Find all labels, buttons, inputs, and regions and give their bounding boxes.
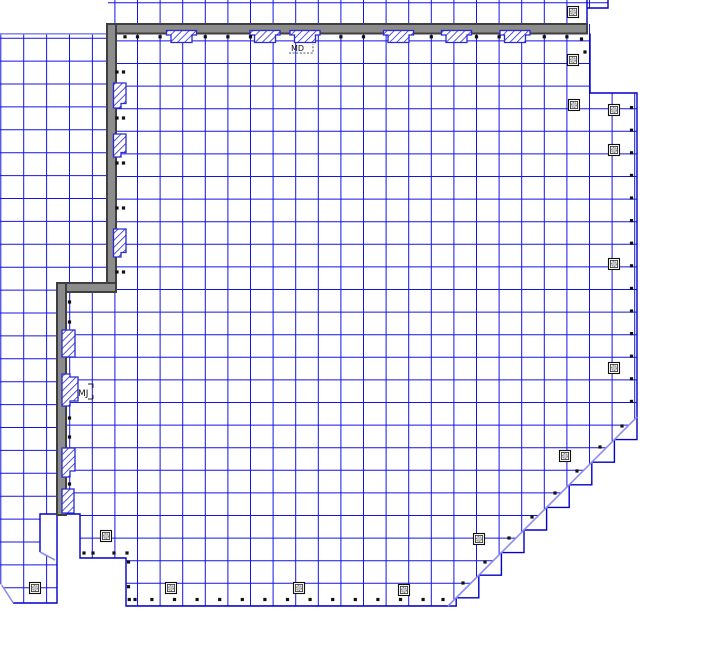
- point-mark: [620, 424, 623, 427]
- top-pier: [167, 31, 197, 43]
- column-symbol: [294, 583, 305, 594]
- point-mark: [630, 287, 633, 290]
- column-symbol: [399, 585, 410, 596]
- point-mark: [122, 161, 125, 164]
- point-mark: [630, 377, 633, 380]
- point-mark: [115, 206, 118, 209]
- point-mark: [630, 332, 633, 335]
- lower-wall-pier: [62, 330, 75, 357]
- column-symbol: [609, 259, 620, 270]
- point-mark: [218, 598, 221, 601]
- point-mark: [136, 35, 139, 38]
- point-mark: [362, 35, 365, 38]
- left-wall-pier: [114, 229, 127, 257]
- column-symbol: [568, 55, 579, 66]
- point-mark: [354, 598, 357, 601]
- column-symbol: [609, 105, 620, 116]
- point-mark: [565, 35, 568, 38]
- point-mark: [115, 161, 118, 164]
- point-mark: [173, 598, 176, 601]
- point-mark: [226, 35, 229, 38]
- cad-viewport[interactable]: MD MJ: [0, 0, 704, 648]
- point-mark: [115, 70, 118, 73]
- top-pier: [384, 31, 414, 43]
- floor-plan-drawing: MD MJ: [0, 0, 704, 648]
- column-symbol: [101, 531, 112, 542]
- point-mark: [630, 355, 633, 358]
- point-mark: [150, 598, 153, 601]
- point-mark: [68, 482, 71, 485]
- point-mark: [598, 445, 601, 448]
- point-mark: [68, 320, 71, 323]
- point-mark: [461, 581, 464, 584]
- point-mark: [630, 264, 633, 267]
- point-mark: [630, 242, 633, 245]
- top-pier: [442, 31, 472, 43]
- point-mark: [125, 551, 128, 554]
- point-mark: [122, 270, 125, 273]
- point-mark: [630, 309, 633, 312]
- point-mark: [128, 598, 131, 601]
- point-mark: [115, 116, 118, 119]
- paper-background: [0, 0, 704, 648]
- point-mark: [241, 598, 244, 601]
- column-symbol: [609, 363, 620, 374]
- point-mark: [507, 536, 510, 539]
- point-mark: [122, 70, 125, 73]
- column-symbol: [166, 583, 177, 594]
- point-mark: [68, 300, 71, 303]
- point-mark: [122, 206, 125, 209]
- point-mark: [498, 35, 501, 38]
- point-mark: [475, 35, 478, 38]
- point-mark: [115, 270, 118, 273]
- point-mark: [430, 35, 433, 38]
- lower-wall-pier: [62, 489, 74, 513]
- point-mark: [630, 196, 633, 199]
- point-mark: [483, 560, 486, 563]
- point-mark: [286, 598, 289, 601]
- point-mark: [68, 435, 71, 438]
- top-pier-md: [290, 31, 320, 43]
- point-mark: [204, 35, 207, 38]
- column-symbol: [568, 7, 579, 18]
- point-mark: [441, 598, 444, 601]
- point-mark: [159, 35, 162, 38]
- point-mark: [122, 116, 125, 119]
- point-mark: [309, 598, 312, 601]
- point-mark: [249, 35, 252, 38]
- point-mark: [196, 598, 199, 601]
- point-mark: [580, 37, 583, 40]
- lower-wall-pier-mj: [62, 374, 78, 406]
- column-symbol: [569, 100, 580, 111]
- column-symbol: [560, 451, 571, 462]
- point-mark: [339, 35, 342, 38]
- point-mark: [630, 129, 633, 132]
- point-mark: [331, 598, 334, 601]
- point-mark: [82, 551, 85, 554]
- point-mark: [575, 469, 578, 472]
- point-mark: [630, 219, 633, 222]
- point-mark: [630, 174, 633, 177]
- point-mark: [630, 400, 633, 403]
- column-symbol: [474, 534, 485, 545]
- point-mark: [543, 35, 546, 38]
- point-mark: [263, 598, 266, 601]
- point-mark: [630, 151, 633, 154]
- point-mark: [376, 598, 379, 601]
- point-mark: [553, 491, 556, 494]
- column-symbol: [609, 145, 620, 156]
- point-mark: [123, 35, 126, 38]
- point-mark: [127, 585, 130, 588]
- point-mark: [630, 106, 633, 109]
- point-mark: [112, 551, 115, 554]
- top-pier: [250, 31, 280, 43]
- label-md: MD: [291, 44, 304, 53]
- column-symbol: [30, 583, 41, 594]
- point-mark: [91, 551, 94, 554]
- top-pier: [500, 31, 530, 43]
- label-mj: MJ: [78, 389, 88, 399]
- point-mark: [127, 560, 130, 563]
- point-mark: [583, 50, 586, 53]
- point-mark: [133, 598, 136, 601]
- point-mark: [422, 598, 425, 601]
- point-mark: [530, 515, 533, 518]
- point-mark: [399, 598, 402, 601]
- point-mark: [68, 416, 71, 419]
